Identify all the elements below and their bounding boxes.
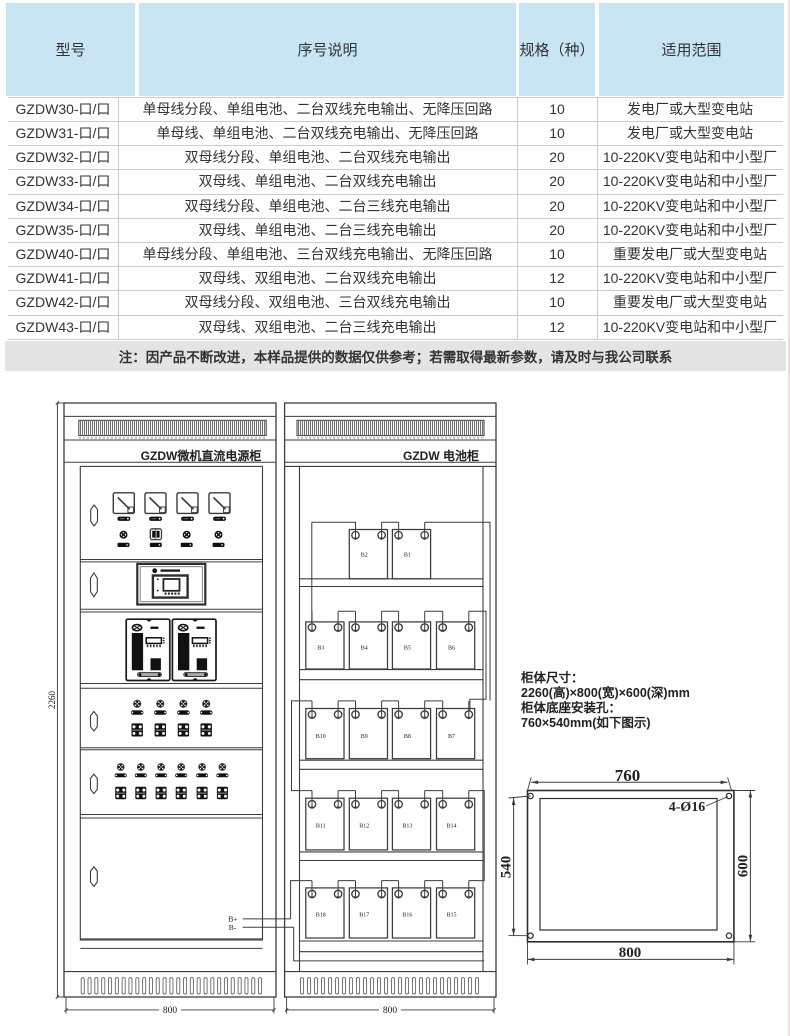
svg-text:540: 540 [499,856,515,879]
svg-text:B10: B10 [316,734,326,740]
svg-text:B3: B3 [317,646,324,652]
svg-text:800: 800 [619,945,642,961]
svg-text:B16: B16 [402,913,412,919]
svg-text:2260: 2260 [47,691,57,710]
svg-text:4-Ø16: 4-Ø16 [669,800,706,815]
svg-text:800: 800 [163,1006,178,1016]
svg-text:800: 800 [383,1006,398,1016]
svg-text:760: 760 [615,766,641,785]
svg-text:B7: B7 [448,734,455,740]
svg-text:B9: B9 [361,734,368,740]
svg-text:B11: B11 [316,824,326,830]
svg-text:600: 600 [736,855,752,878]
svg-text:B15: B15 [446,913,456,919]
svg-text:B6: B6 [448,646,455,652]
svg-text:B12: B12 [359,824,369,830]
svg-text:B13: B13 [402,824,412,830]
svg-text:B5: B5 [404,646,411,652]
svg-text:B14: B14 [446,824,456,830]
svg-text:B-: B- [229,923,237,932]
svg-text:B1: B1 [404,553,411,559]
svg-text:B17: B17 [359,913,369,919]
svg-text:B18: B18 [316,913,326,919]
svg-text:B8: B8 [404,734,411,740]
svg-text:B4: B4 [361,646,368,652]
svg-text:B2: B2 [361,553,368,559]
